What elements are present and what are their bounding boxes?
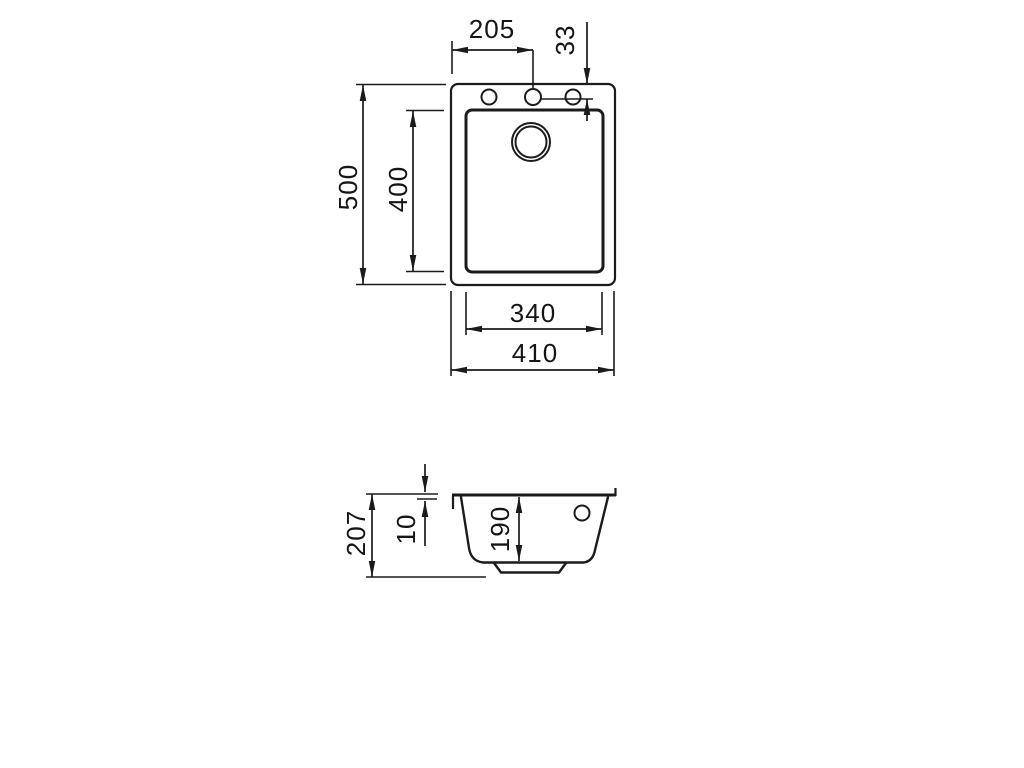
- dim-label-410: 410: [512, 338, 558, 368]
- dim-bowl-depth: 400: [383, 111, 444, 272]
- overflow-hole: [575, 506, 590, 521]
- sink-outer-rect: [451, 84, 615, 285]
- dim-bowl-inner-depth: 190: [485, 497, 519, 561]
- dim-label-10: 10: [391, 514, 421, 545]
- drain-inner-circle: [516, 127, 547, 158]
- dim-label-500: 500: [333, 164, 363, 210]
- dim-rim-height: 10: [391, 464, 437, 546]
- technical-drawing-page: 205 33 500 400 340: [0, 0, 1024, 768]
- section-view: 207 10 190: [341, 464, 616, 577]
- dim-label-205: 205: [469, 14, 515, 44]
- dim-label-33: 33: [550, 25, 580, 56]
- dim-label-207: 207: [341, 510, 371, 556]
- tap-hole-right: [566, 90, 581, 105]
- dim-tap-edge-offset: 33: [550, 22, 587, 121]
- dim-label-340: 340: [510, 298, 556, 328]
- top-view: 205 33 500 400 340: [333, 14, 615, 376]
- sink-dimension-drawing: 205 33 500 400 340: [0, 0, 1024, 768]
- tap-hole-left: [482, 90, 497, 105]
- dim-label-400: 400: [383, 166, 413, 212]
- dim-bowl-width: 340: [466, 292, 602, 335]
- dim-label-190: 190: [485, 506, 515, 552]
- dim-tap-center-offset: 205: [452, 14, 533, 88]
- section-drain-recess: [494, 563, 566, 573]
- tap-hole-center: [525, 89, 541, 105]
